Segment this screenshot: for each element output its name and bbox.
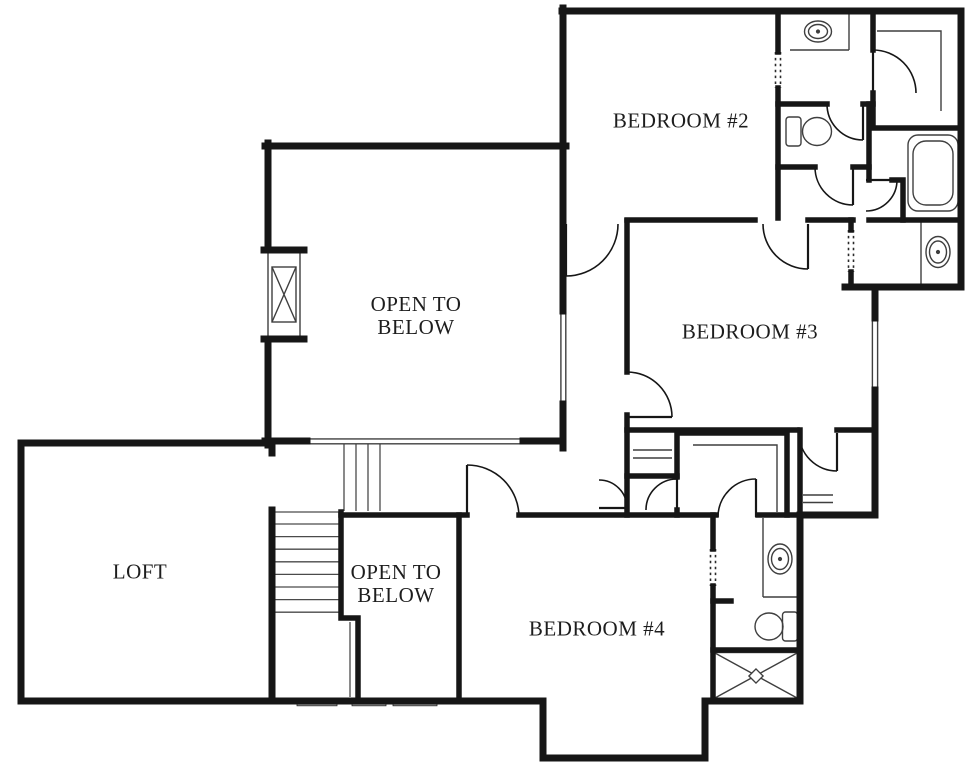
- railing: [307, 439, 523, 444]
- sink-icon: [768, 544, 792, 574]
- floor-plan: BEDROOM #2 BEDROOM #3 BEDROOM #4 OPEN TO…: [0, 0, 976, 768]
- door-arc: [799, 433, 837, 471]
- door-arc: [566, 224, 618, 276]
- closet-shelf-lines: [877, 31, 941, 111]
- shower-icon: [714, 653, 798, 699]
- exterior-walls: [21, 8, 961, 758]
- stair-railing-lines: [344, 445, 380, 512]
- door-arc: [646, 479, 677, 510]
- door-arc: [763, 224, 808, 269]
- toilet-icon: [755, 612, 798, 641]
- door-arc: [815, 167, 853, 205]
- stair-treads: [273, 512, 339, 612]
- room-label-open-to-below-lower: OPEN TO BELOW: [351, 561, 442, 607]
- sink-icon: [926, 237, 950, 268]
- closet-shelf-lines: [693, 445, 777, 512]
- room-label-bedroom2: BEDROOM #2: [613, 110, 749, 133]
- railing: [561, 311, 566, 404]
- room-label-loft: LOFT: [113, 561, 168, 584]
- door-arc: [873, 50, 916, 93]
- room-label-bedroom3: BEDROOM #3: [682, 321, 818, 344]
- door-arc: [866, 180, 897, 211]
- floor-plan-drawing: [0, 0, 976, 768]
- closet-shelf-lines: [633, 450, 672, 458]
- door-arc: [627, 372, 672, 417]
- cased-opening: [849, 230, 854, 272]
- room-label-line: OPEN TO: [351, 561, 442, 584]
- cased-opening: [776, 52, 781, 88]
- room-label-line: OPEN TO: [371, 293, 462, 316]
- room-label-line: BELOW: [351, 584, 442, 607]
- door-arc: [467, 465, 519, 517]
- fireplace-icon: [268, 253, 300, 336]
- door-arc: [718, 479, 756, 517]
- room-label-bedroom4: BEDROOM #4: [529, 618, 665, 641]
- room-label-line: BELOW: [371, 316, 462, 339]
- room-label-open-to-below-upper: OPEN TO BELOW: [371, 293, 462, 339]
- door-arc: [827, 104, 863, 140]
- door-arc: [599, 480, 627, 508]
- closet-shelf-lines: [803, 495, 833, 503]
- window-double-line: [872, 318, 877, 390]
- bathtub-icon: [908, 135, 958, 211]
- toilet-icon: [786, 117, 832, 146]
- cased-opening: [711, 549, 716, 586]
- sink-icon: [805, 21, 832, 42]
